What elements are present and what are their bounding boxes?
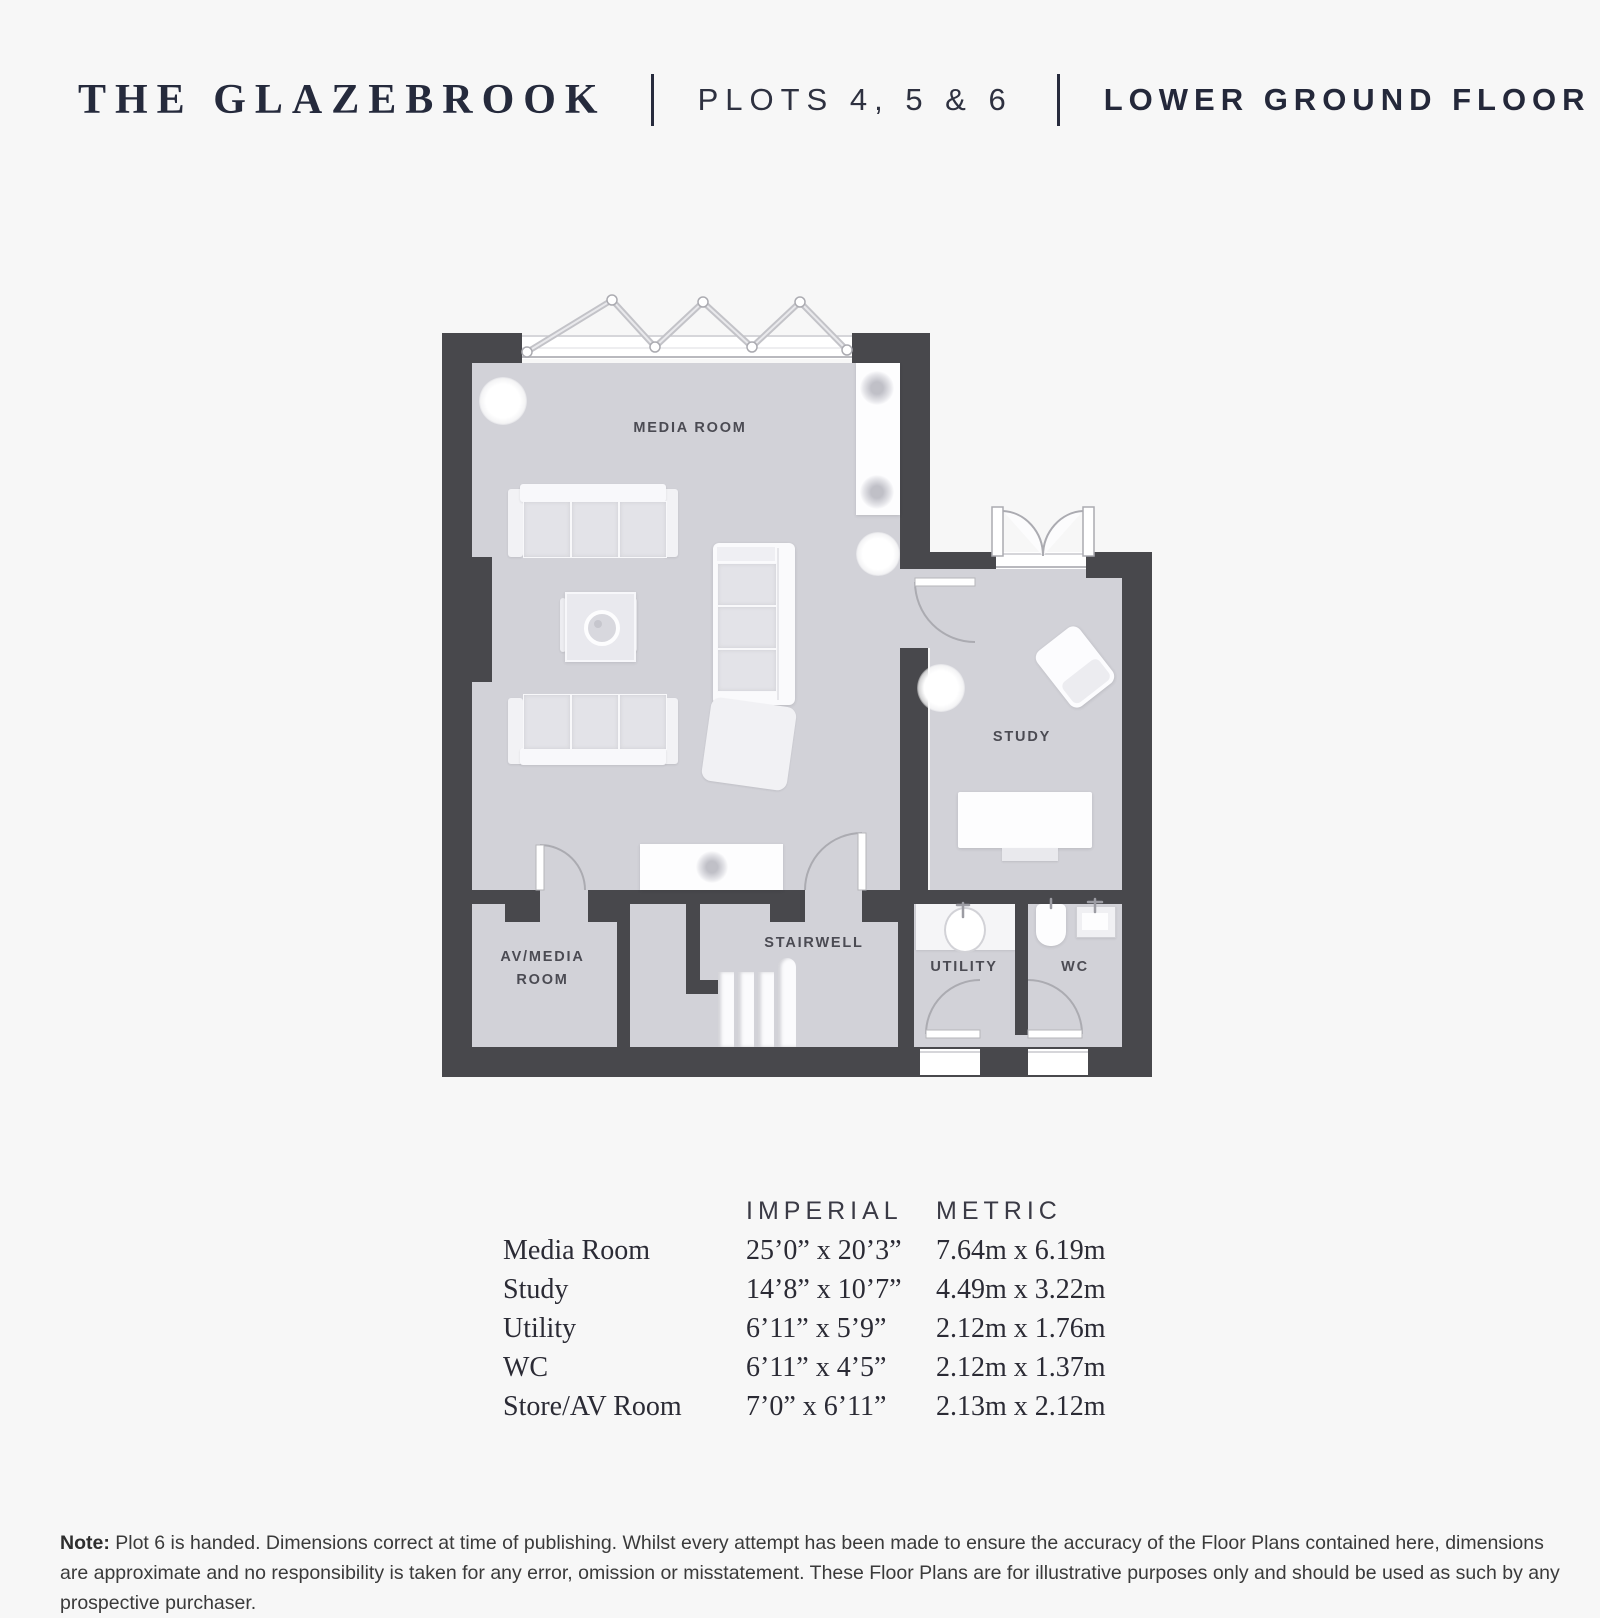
imperial-size: 6’11” x 4’5”	[746, 1352, 936, 1384]
ceiling-light	[856, 532, 900, 576]
room-label-av-media-room: AV/MEDIA ROOM	[470, 946, 615, 992]
wall-bottom-outer	[442, 1047, 1152, 1077]
wall-study-top-corner	[1086, 552, 1152, 578]
wall-left-pier	[472, 557, 492, 682]
wall-stair-enclosure-foot	[686, 980, 718, 994]
dimensions-table: IMPERIAL METRIC Media Room 25’0” x 20’3”…	[503, 1192, 1156, 1426]
wall-jamb	[770, 890, 805, 922]
room-label-study: STUDY	[952, 729, 1092, 745]
table-corner-spacer	[503, 1188, 746, 1236]
metric-size: 2.13m x 2.12m	[936, 1391, 1156, 1423]
study-doorway-floor	[900, 569, 930, 648]
room-label-media-room: MEDIA ROOM	[600, 420, 780, 436]
metric-size: 2.12m x 1.37m	[936, 1352, 1156, 1384]
floor-level-label: LOWER GROUND FLOOR	[1104, 82, 1591, 118]
lounger	[701, 696, 798, 791]
imperial-size: 14’8” x 10’7”	[746, 1274, 936, 1306]
speaker-circle	[860, 475, 894, 509]
wall-utility-wc-divider	[1015, 904, 1028, 1035]
room-name: WC	[503, 1352, 746, 1384]
room-label-wc: WC	[1035, 959, 1115, 975]
wall-separator-under-study	[900, 890, 1122, 904]
room-name: Media Room	[503, 1235, 746, 1267]
room-label-stairwell: STAIRWELL	[744, 935, 884, 951]
wall-stair-utility-divider	[898, 904, 914, 1047]
wall-right-outer	[1122, 552, 1152, 1077]
stairwell-doorway-floor	[805, 890, 862, 904]
room-name: Study	[503, 1274, 746, 1306]
column-header-imperial: IMPERIAL	[746, 1188, 936, 1236]
page-header: THE GLAZEBROOK PLOTS 4, 5 & 6 LOWER GROU…	[78, 68, 1591, 132]
floorplan-page: { "header": { "title": "THE GLAZEBROOK",…	[0, 0, 1600, 1600]
note-label: Note:	[60, 1532, 110, 1554]
sideboard-bowl	[696, 851, 728, 883]
disclaimer-note: Note: Plot 6 is handed. Dimensions corre…	[60, 1528, 1562, 1618]
french-doors	[992, 507, 1094, 569]
metric-size: 4.49m x 3.22m	[936, 1274, 1156, 1306]
ceiling-light	[479, 377, 527, 425]
header-divider	[651, 74, 654, 126]
room-label-utility: UTILITY	[914, 959, 1014, 975]
room-name: Store/AV Room	[503, 1391, 746, 1423]
wall-media-right-upper	[900, 363, 930, 552]
study-desk	[958, 792, 1092, 848]
av-doorway-floor	[540, 890, 588, 904]
imperial-size: 25’0” x 20’3”	[746, 1235, 936, 1267]
note-text: Plot 6 is handed. Dimensions correct at …	[60, 1532, 1560, 1614]
wash-basin	[1076, 906, 1116, 938]
ceiling-light	[917, 664, 965, 712]
media-room-floor	[472, 363, 900, 890]
wall-jamb	[505, 890, 540, 922]
desk-keyboard	[1002, 848, 1058, 861]
wall-stair-enclosure-vertical	[686, 904, 700, 985]
metric-size: 7.64m x 6.19m	[936, 1235, 1156, 1267]
wall-study-top-thin	[900, 552, 996, 569]
room-name: Utility	[503, 1313, 746, 1345]
header-divider	[1057, 74, 1060, 126]
toilet	[1036, 904, 1066, 946]
imperial-size: 6’11” x 5’9”	[746, 1313, 936, 1345]
plot-title: THE GLAZEBROOK	[78, 76, 607, 124]
wall-left-outer	[442, 333, 472, 1077]
wall-av-stair-divider	[617, 904, 630, 1047]
bifold-door	[522, 295, 852, 359]
wall-top-right	[852, 333, 930, 363]
column-header-metric: METRIC	[936, 1188, 1156, 1236]
utility-sink	[944, 907, 986, 953]
speaker-circle	[860, 371, 894, 405]
plots-label: PLOTS 4, 5 & 6	[698, 82, 1013, 118]
metric-size: 2.12m x 1.76m	[936, 1313, 1156, 1345]
imperial-size: 7’0” x 6’11”	[746, 1391, 936, 1423]
